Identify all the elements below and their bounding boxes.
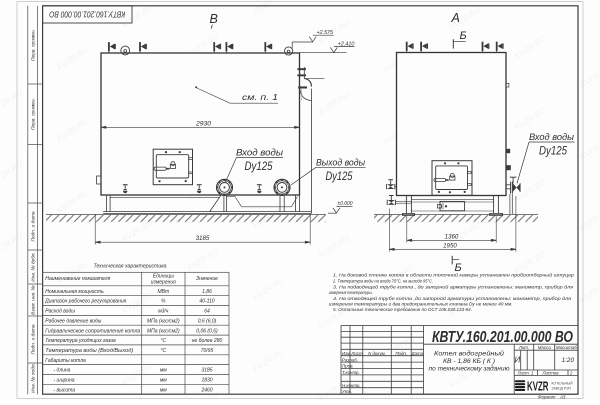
svg-text:МПа (кгс/см2): МПа (кгс/см2) (147, 328, 180, 334)
svg-text:Формат: Формат (538, 395, 556, 400)
svg-text:Значение: Значение (196, 276, 218, 282)
svg-text:3. На подводящей трубе котла: 3. На подводящей трубе котла , до запорн… (333, 283, 573, 290)
svg-text:Подп.: Подп. (395, 351, 407, 356)
svg-text:Температура уходящих газов: Температура уходящих газов (45, 338, 116, 344)
svg-text:ЗАВОД РЭП: ЗАВОД РЭП (552, 386, 572, 390)
svg-text:мм: мм (160, 387, 167, 393)
svg-text:Лист: Лист (517, 370, 530, 375)
svg-text:Габариты котла: Габариты котла (45, 358, 86, 364)
svg-text:Подп. и дата: Подп. и дата (31, 211, 37, 241)
svg-text:В: В (210, 12, 218, 26)
svg-text:Утв.: Утв. (342, 389, 352, 394)
svg-text:Взам. инв. №: Взам. инв. № (31, 285, 37, 315)
svg-text:Номинальная мощность: Номинальная мощность (45, 289, 104, 295)
svg-text:измерения: измерения (151, 279, 176, 285)
svg-text:0,06 (0,6): 0,06 (0,6) (196, 328, 218, 334)
svg-text:Пров.: Пров. (342, 364, 354, 369)
svg-text:+2.575: +2.575 (317, 30, 334, 36)
svg-text:±0.000: ±0.000 (338, 201, 353, 207)
svg-text:Вход воды: Вход воды (529, 132, 574, 142)
svg-text:Расход воды: Расход воды (45, 309, 75, 315)
svg-text:Дата: Дата (411, 351, 424, 356)
svg-text:Перв. примен.: Перв. примен. (31, 29, 37, 61)
svg-text:не более 280: не более 280 (192, 338, 223, 344)
svg-text:измерения температуры.: измерения температуры. (329, 291, 373, 296)
svg-text:2: 2 (569, 370, 573, 375)
svg-text:мм: мм (160, 368, 167, 374)
svg-text:КВТУ.160.201.00.000 ВО: КВТУ.160.201.00.000 ВО (432, 329, 573, 346)
svg-text:Вход воды: Вход воды (236, 148, 283, 158)
svg-text:КОТЕЛЬНЫЙ: КОТЕЛЬНЫЙ (552, 381, 574, 385)
svg-text:Б: Б (455, 262, 462, 274)
svg-text:Т.контр.: Т.контр. (342, 370, 360, 375)
svg-text:1950: 1950 (443, 242, 457, 249)
svg-text:Перв. примен.: Перв. примен. (31, 98, 37, 130)
svg-text:см. п. 1: см. п. 1 (242, 92, 278, 102)
svg-text:КВТУ.160.201.00.000 ВО: КВТУ.160.201.00.000 ВО (49, 10, 125, 20)
svg-text:Dy125: Dy125 (539, 143, 567, 157)
svg-text:КВ - 1,86 КБ ( К ): КВ - 1,86 КБ ( К ) (443, 358, 495, 365)
svg-text:N докум.: N докум. (368, 351, 386, 356)
svg-text:Масштаб: Масштаб (556, 345, 578, 350)
svg-text:Подп. и дата: Подп. и дата (31, 324, 37, 354)
svg-text:2930: 2930 (195, 120, 211, 127)
svg-text:°С: °С (160, 338, 166, 344)
svg-text:Н.контр.: Н.контр. (342, 383, 361, 388)
svg-text:40-110: 40-110 (199, 299, 214, 305)
svg-text:Листов: Листов (542, 370, 560, 375)
svg-text:мм: мм (160, 378, 167, 384)
svg-text:+2.410: +2.410 (338, 41, 355, 47)
svg-text:°С: °С (160, 348, 166, 354)
svg-text:Инв. № дубл.: Инв. № дубл. (31, 252, 37, 282)
svg-text:Котел водогрейный: Котел водогрейный (434, 349, 505, 357)
svg-text:Лит.: Лит. (518, 345, 529, 350)
svg-text:Диапазон рабочего регулировани: Диапазон рабочего регулирования (44, 299, 126, 305)
svg-text:Разраб.: Разраб. (342, 357, 358, 362)
svg-text:KVZR: KVZR (527, 380, 549, 394)
svg-text:Масса: Масса (538, 345, 552, 350)
svg-text:И: И (515, 355, 521, 364)
svg-text:2. Температура воды на входе: 2. Температура воды на входе 70°С, на вы… (332, 278, 433, 284)
svg-text:Dy125: Dy125 (326, 169, 353, 183)
svg-text:1:20: 1:20 (562, 357, 575, 364)
svg-text:Изм.Лист: Изм.Лист (342, 351, 363, 356)
svg-text:4. На отводящей трубе котла ,: 4. На отводящей трубе котла ,до запорной… (333, 295, 571, 302)
svg-text:1,86: 1,86 (202, 289, 212, 295)
svg-text:- высота: - высота (54, 387, 76, 393)
svg-text:Температура воды (Вход/Выход): Температура воды (Вход/Выход) (45, 348, 133, 354)
svg-text:1. На боковой стенке котла в: 1. На боковой стенке котла в области топ… (333, 272, 574, 279)
svg-text:Б: Б (460, 30, 467, 42)
svg-text:Рабочее давление воды: Рабочее давление воды (45, 318, 101, 324)
svg-text:МВт: МВт (157, 289, 169, 295)
svg-text:- ширина: - ширина (54, 378, 75, 384)
svg-text:Техническая характеристика: Техническая характеристика (94, 264, 167, 270)
svg-text:Dy125: Dy125 (245, 159, 273, 173)
svg-text:по техническому заданию: по техническому заданию (429, 365, 510, 373)
svg-text:Инв. № подл.: Инв. № подл. (31, 363, 37, 393)
svg-text:1360: 1360 (445, 233, 459, 240)
svg-text:Гидравлическое сопротивление к: Гидравлическое сопротивление котла (45, 328, 140, 334)
svg-text:1830: 1830 (201, 378, 212, 384)
svg-text:АЗ: АЗ (559, 395, 566, 400)
svg-text:Выход воды: Выход воды (316, 157, 365, 167)
svg-text:измерения температуры и два пр: измерения температуры и два предохраните… (329, 302, 513, 308)
svg-text:МПа (кгс/см2): МПа (кгс/см2) (147, 318, 180, 324)
svg-text:Наименование показателя: Наименование показателя (45, 276, 110, 282)
svg-text:%: % (161, 299, 166, 305)
svg-text:А: А (451, 11, 460, 25)
svg-text:3185: 3185 (201, 368, 212, 374)
svg-text:70/95: 70/95 (201, 348, 214, 354)
svg-text:м3/ч: м3/ч (158, 309, 169, 315)
svg-text:0,6 (6,0): 0,6 (6,0) (198, 318, 217, 324)
svg-text:2460: 2460 (200, 387, 212, 393)
svg-text:3185: 3185 (196, 235, 210, 242)
svg-text:64: 64 (204, 309, 210, 315)
svg-text:5. Остальные технические треб: 5. Остальные технические требования по О… (333, 307, 472, 313)
svg-text:- длина: - длина (54, 368, 71, 374)
